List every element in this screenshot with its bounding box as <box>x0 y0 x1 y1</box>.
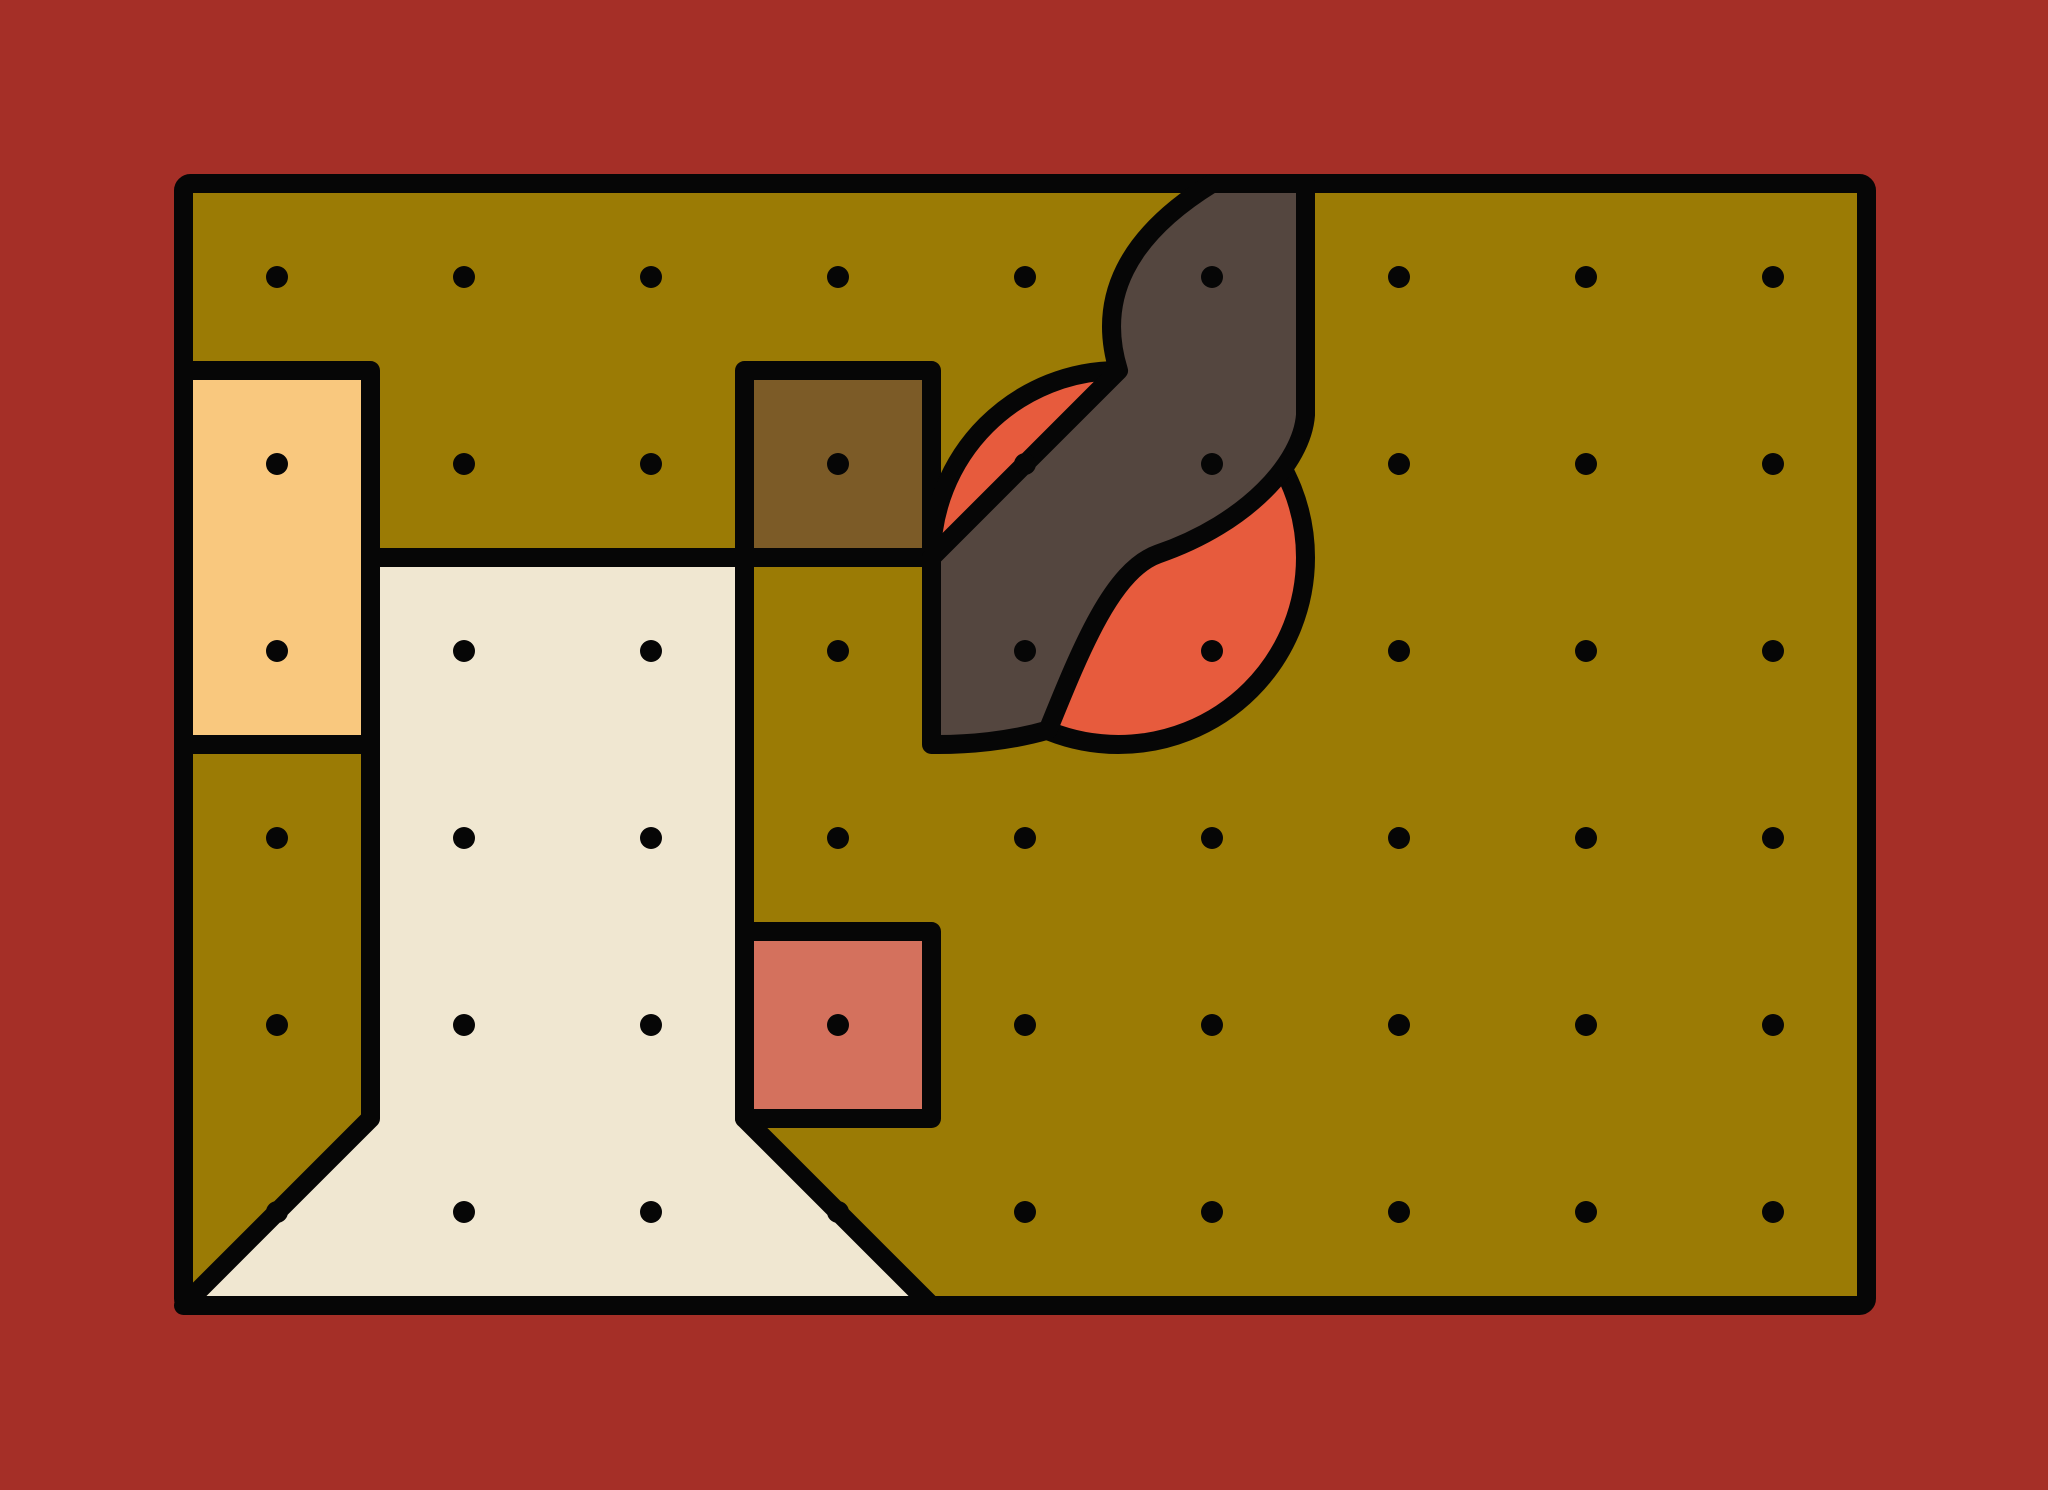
grid-dot <box>1014 640 1036 662</box>
grid-dot <box>1201 827 1223 849</box>
grid-dot <box>827 640 849 662</box>
grid-dot <box>1575 640 1597 662</box>
grid-dot <box>827 266 849 288</box>
grid-dot <box>827 827 849 849</box>
grid-dot <box>1388 266 1410 288</box>
grid-dot <box>1388 1014 1410 1036</box>
grid-dot <box>1388 640 1410 662</box>
grid-dot <box>266 266 288 288</box>
grid-dot <box>1201 266 1223 288</box>
grid-dot <box>1201 640 1223 662</box>
grid-dot <box>1575 827 1597 849</box>
grid-dot <box>640 266 662 288</box>
grid-dot <box>1014 1014 1036 1036</box>
grid-dot <box>453 1201 475 1223</box>
grid-dot <box>266 1201 288 1223</box>
sandy-rectangle <box>184 371 371 745</box>
grid-dot <box>827 1014 849 1036</box>
grid-dot <box>1014 1201 1036 1223</box>
grid-dot <box>1201 1201 1223 1223</box>
grid-dot <box>1014 266 1036 288</box>
grid-dot <box>827 1201 849 1223</box>
grid-dot <box>453 827 475 849</box>
grid-dot <box>266 640 288 662</box>
grid-dot <box>1762 1014 1784 1036</box>
grid-dot <box>1762 453 1784 475</box>
grid-dot <box>1762 266 1784 288</box>
grid-dot <box>640 453 662 475</box>
grid-dot <box>640 1014 662 1036</box>
grid-dot <box>1762 1201 1784 1223</box>
grid-dot <box>1575 1201 1597 1223</box>
grid-dot <box>1762 827 1784 849</box>
grid-dot <box>1014 827 1036 849</box>
grid-dot <box>1201 453 1223 475</box>
grid-dot <box>640 640 662 662</box>
grid-dot <box>640 1201 662 1223</box>
grid-dot <box>1575 453 1597 475</box>
grid-dot <box>266 1014 288 1036</box>
artwork <box>0 0 2048 1490</box>
grid-dot <box>266 827 288 849</box>
grid-dot <box>453 453 475 475</box>
grid-dot <box>1575 266 1597 288</box>
artwork-canvas <box>0 0 2048 1490</box>
grid-dot <box>266 453 288 475</box>
grid-dot <box>1201 1014 1223 1036</box>
grid-dot <box>1014 453 1036 475</box>
grid-dot <box>1388 453 1410 475</box>
grid-dot <box>1388 827 1410 849</box>
grid-dot <box>640 827 662 849</box>
grid-dot <box>1388 1201 1410 1223</box>
grid-dot <box>1575 1014 1597 1036</box>
grid-dot <box>827 453 849 475</box>
grid-dot <box>453 266 475 288</box>
grid-dot <box>453 640 475 662</box>
grid-dot <box>1762 640 1784 662</box>
grid-dot <box>453 1014 475 1036</box>
